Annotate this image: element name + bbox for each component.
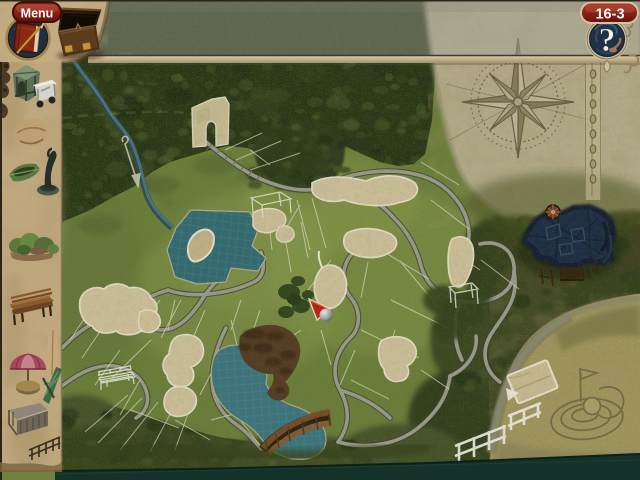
- svg-text:16-3: 16-3: [595, 7, 624, 23]
- svg-text:Menu: Menu: [21, 7, 54, 21]
- svg-text:?: ?: [599, 22, 616, 59]
